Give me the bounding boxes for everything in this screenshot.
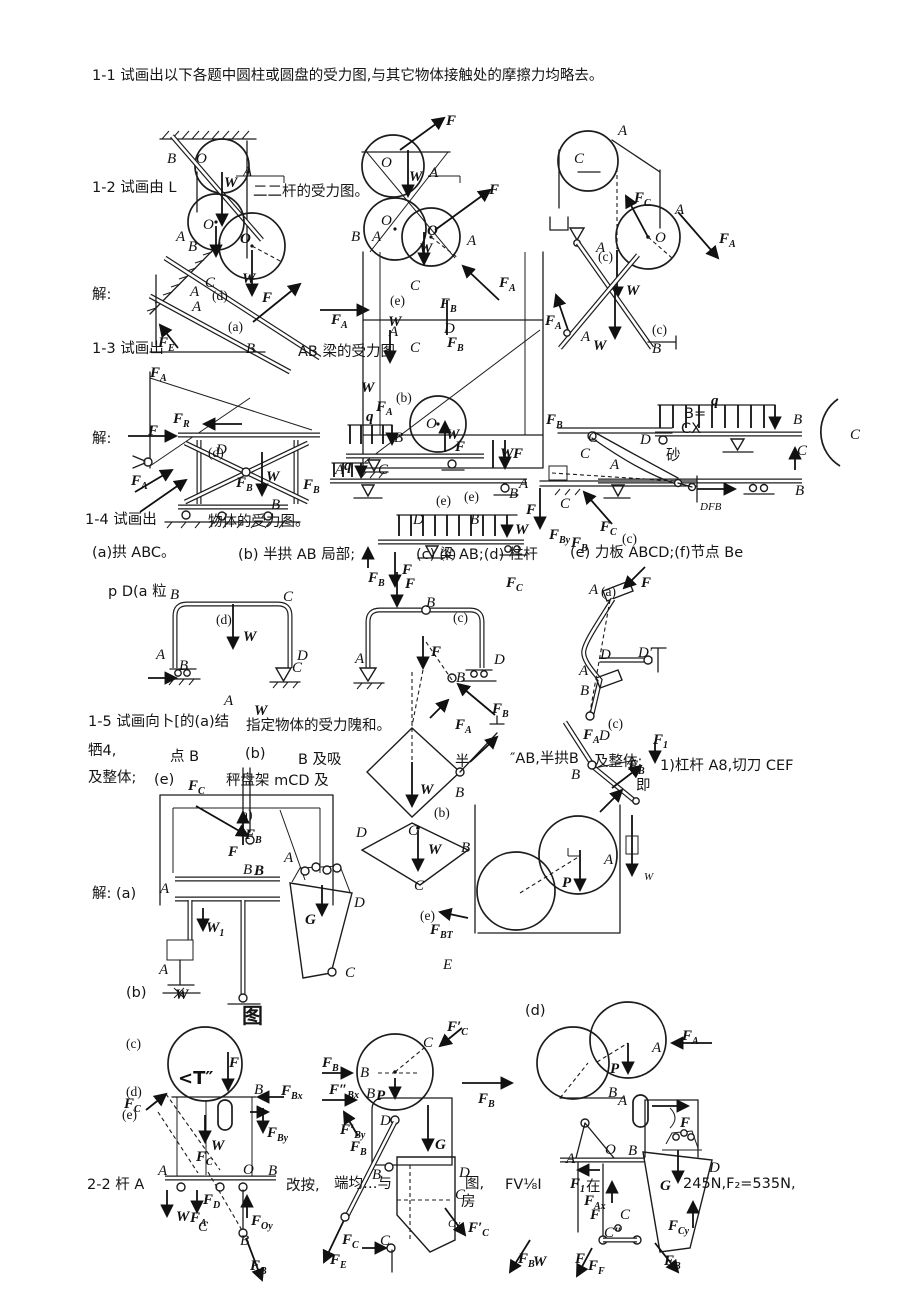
text-line: (d) — [525, 1003, 546, 1020]
diagram-label: W — [500, 447, 513, 462]
diagram-label: FC — [600, 520, 617, 535]
diagram-label: Cy — [448, 1219, 460, 1230]
diagram-label: FA — [455, 718, 472, 733]
diagram-label: F′C — [447, 1020, 468, 1035]
diagram-label: D — [356, 826, 367, 841]
diagram-label: B — [167, 152, 176, 167]
diagram-label: W — [176, 1210, 189, 1225]
diagram-label: (c) — [598, 250, 613, 264]
diagram-label: A — [372, 230, 381, 245]
diagram-label: O — [426, 417, 437, 432]
diagram-label: FA — [376, 400, 393, 415]
diagram-label: (c) — [453, 611, 468, 625]
diagram-label: B — [268, 1164, 277, 1179]
diagram-label: A — [652, 1041, 661, 1056]
diagram-label: W1 — [206, 921, 224, 936]
diagram-label: A — [192, 300, 201, 315]
text-line: 解: (a) — [92, 886, 136, 903]
diagram-label: FC — [506, 576, 523, 591]
diagram-label: P — [610, 1062, 619, 1077]
diagram-label: B — [580, 684, 589, 699]
diagram-label: A — [389, 325, 398, 340]
diagram-label: q — [344, 459, 352, 474]
diagram-label: O — [605, 1143, 616, 1158]
diagram-label: FOy — [251, 1214, 273, 1229]
text-line: 物体的受力图。 — [208, 514, 310, 531]
diagram-label: W — [409, 170, 422, 185]
diagram-label: A — [355, 652, 364, 667]
diagram-label: (a) — [601, 585, 616, 599]
text-line: (b) — [245, 746, 266, 763]
diagram-label: B — [240, 1234, 249, 1249]
text-line: CX — [681, 421, 701, 438]
diagram-label: FB — [447, 336, 464, 351]
diagram-label: FA — [131, 474, 148, 489]
text-line: 1-2 试画由 L — [92, 180, 176, 197]
diagram-label: G — [435, 1138, 446, 1153]
text-line: (b) 半拱 AB 局部; — [238, 547, 355, 564]
diagram-label: FR — [173, 412, 190, 427]
diagram-label: W — [420, 783, 433, 798]
text-line: 解: — [92, 287, 111, 304]
diagram-label: B — [571, 768, 580, 783]
diagram-label: F — [455, 440, 465, 455]
diagram-label: D — [600, 648, 611, 663]
diagram-label: (c) — [126, 1037, 141, 1051]
diagram-label: F — [641, 576, 651, 591]
diagram-label: F1 — [570, 1177, 585, 1192]
text-line: 1-1 试画出以下各题中圆柱或圆盘的受力图,与其它物体接触处的摩擦力均略去。 — [92, 68, 603, 85]
diagram-label: C — [620, 1208, 630, 1223]
text-line: 二二杆的受力图。 — [253, 184, 369, 201]
diagram-label: C — [560, 497, 570, 512]
diagram-label: F — [513, 447, 523, 462]
diagram-label: C — [574, 152, 584, 167]
diagram-label: F′By — [340, 1123, 365, 1138]
text-line: 牺4, — [88, 743, 116, 760]
diagram-label: B — [509, 487, 518, 502]
diagram-label: A — [610, 458, 619, 473]
diagram-label: B — [455, 786, 464, 801]
diagram-label: A — [159, 963, 168, 978]
diagram-label: FA — [499, 276, 516, 291]
diagram-label: F — [229, 1056, 239, 1071]
diagram-label: O — [655, 231, 666, 246]
diagram-label: (d) — [208, 446, 224, 460]
diagram-label: W — [644, 872, 653, 883]
diagram-label: C — [283, 590, 293, 605]
diagram-label: (e) — [122, 1108, 137, 1122]
diagram-label: W — [254, 704, 267, 719]
document-page: 1-1 试画出以下各题中圆柱或圆盘的受力图,与其它物体接触处的摩擦力均略去。1-… — [0, 0, 920, 1301]
fig-platform-scale — [160, 768, 352, 1004]
diagram-label: (e) — [390, 294, 405, 308]
diagram-label: C — [292, 661, 302, 676]
diagram-label: A — [589, 583, 598, 598]
diagram-label: O — [381, 214, 392, 229]
diagram-label: A — [618, 1094, 627, 1109]
diagram-label: F — [526, 503, 536, 518]
diagram-label: (e) — [464, 490, 479, 504]
diagram-label: D — [640, 433, 651, 448]
diagram-label: O — [243, 1163, 254, 1178]
diagram-label: B — [426, 596, 435, 611]
diagram-label: FBT — [430, 923, 453, 938]
diagram-label: F — [489, 183, 499, 198]
diagram-label: FA — [150, 366, 167, 381]
diagram-label: C — [378, 463, 388, 478]
text-line: ″AB,半拱B — [510, 751, 579, 768]
diagram-label: W — [266, 470, 279, 485]
diagram-label: C — [410, 279, 420, 294]
diagram-label: W — [211, 1139, 224, 1154]
text-line: 端均…与 — [334, 1176, 392, 1193]
diagram-label: G — [660, 1179, 671, 1194]
diagram-label: F — [680, 1116, 690, 1131]
diagram-label: (c) — [652, 323, 667, 337]
diagram-label: C — [408, 824, 418, 839]
text-line: 半 — [455, 754, 470, 771]
diagram-label: F — [431, 645, 441, 660]
text-line: 1-5 试画向卜[的(a)结 — [88, 714, 229, 731]
diagram-label: A — [190, 285, 199, 300]
diagram-label: F — [590, 1208, 600, 1223]
diagram-label: B — [360, 1066, 369, 1081]
diagram-label: B — [628, 1144, 637, 1159]
diagram-label: A — [335, 463, 344, 478]
diagram-label: A — [158, 1164, 167, 1179]
text-line: 245N,F₂=535N, — [683, 1176, 796, 1193]
diagram-label: B — [179, 659, 188, 674]
diagram-label: <T″ — [178, 1070, 213, 1088]
diagram-label: A — [243, 165, 252, 180]
text-line: (e) — [154, 772, 174, 789]
diagram-label: q — [366, 410, 374, 425]
diagram-label: W — [419, 242, 432, 257]
diagram-label: D — [459, 1166, 470, 1181]
fig-cylinders-container — [475, 805, 638, 933]
diagram-label: W — [175, 988, 188, 1003]
diagram-label: F″Bx — [329, 1083, 359, 1098]
diagram-label: F — [262, 291, 272, 306]
diagram-label: W — [593, 339, 606, 354]
diagram-label: (c) — [608, 717, 623, 731]
diagram-label: W — [428, 843, 441, 858]
diagram-label: FA — [331, 313, 348, 328]
text-line: p D(a 粒 — [108, 584, 167, 601]
diagram-label: O — [196, 152, 207, 167]
diagram-label: FB — [478, 1092, 495, 1107]
diagram-label: B — [243, 863, 252, 878]
text-line: (a)拱 ABC。 — [92, 545, 176, 562]
diagram-label: (a) — [228, 320, 243, 334]
diagram-label: FF — [588, 1259, 605, 1274]
diagram-label: W — [515, 523, 528, 538]
diagram-label: A — [604, 853, 613, 868]
diagram-label: F1 — [653, 733, 668, 748]
diagram-label: B — [254, 864, 264, 879]
diagram-label: FCy — [668, 1219, 689, 1234]
diagram-label: FA — [682, 1029, 699, 1044]
diagram-label: C — [850, 428, 860, 443]
diagram-label: F — [575, 1252, 585, 1267]
diagram-label: C — [588, 431, 598, 446]
diagram-label: (e) — [420, 909, 435, 923]
diagram-label: O — [381, 156, 392, 171]
diagram-label: D — [413, 513, 424, 528]
diagram-label: P — [562, 876, 571, 891]
diagram-label: B — [394, 431, 403, 446]
diagram-label: FBx — [281, 1084, 303, 1099]
text-line: 秤盘架 mCD 及 — [226, 773, 329, 790]
diagram-label: B — [254, 1083, 263, 1098]
diagram-label: B — [366, 1087, 375, 1102]
diagram-label: B — [271, 498, 280, 513]
fig-bottom-right-assembly — [462, 1002, 712, 1276]
text-line: FV⅛I — [505, 1177, 542, 1194]
diagram-label: F — [405, 577, 415, 592]
diagram-label: F′C — [468, 1221, 489, 1236]
diagram-label: FE — [158, 336, 175, 351]
diagram-label: W — [242, 272, 255, 287]
text-line: 2-2 杆 A — [87, 1177, 144, 1194]
diagram-label: A — [176, 230, 185, 245]
text-line: AB 梁的受力图 — [298, 344, 395, 361]
diagram-label: B — [470, 513, 479, 528]
text-line: 点 B — [170, 749, 199, 766]
diagram-label: q — [711, 394, 719, 409]
text-line: 解: — [92, 431, 111, 448]
diagram-label: C″ — [604, 1226, 620, 1241]
diagram-label: C — [423, 1036, 433, 1051]
diagram-label: E — [443, 958, 452, 973]
diagram-label: B — [608, 1086, 617, 1101]
text-line: 1-3 试画出 — [92, 341, 164, 358]
diagram-label: (e) — [436, 494, 451, 508]
diagram-label: FC — [342, 1233, 359, 1248]
diagram-label: FC — [634, 191, 651, 206]
diagram-label: D — [354, 896, 365, 911]
diagram-label: FA — [583, 728, 600, 743]
diagram-label: (d) — [216, 613, 232, 627]
diagram-label: B — [456, 671, 465, 686]
diagram-label: G — [305, 913, 316, 928]
diagram-label: B — [652, 342, 661, 357]
diagram-label: W — [533, 1255, 546, 1270]
diagram-label: C — [580, 447, 590, 462]
diagram-label: A — [467, 234, 476, 249]
diagram-label: A — [618, 124, 627, 139]
text-line: (c) 梁 AB;(d) 柱杆 — [416, 547, 538, 564]
diagram-label: FC — [188, 779, 205, 794]
fig-portal-frames — [148, 572, 496, 726]
diagram-label: DFB — [700, 502, 721, 513]
diagram-label: FB — [492, 702, 509, 717]
diagram-label: F — [446, 114, 456, 129]
diagram-label: C — [455, 1188, 465, 1203]
text-line: 1)杠杆 A8,切刀 CEF — [660, 758, 793, 775]
diagram-label: A — [519, 477, 528, 492]
diagram-label: FB — [245, 828, 262, 843]
diagram-label: FE — [330, 1253, 347, 1268]
diagram-label: A — [160, 882, 169, 897]
diagram-label: B — [246, 342, 255, 357]
diagram-label: FB — [571, 536, 588, 551]
diagram-label: A — [566, 1152, 575, 1167]
diagram-label: A — [224, 694, 233, 709]
text-line: 即 — [636, 778, 651, 795]
diagram-label: A — [579, 664, 588, 679]
diagram-label: A — [156, 648, 165, 663]
text-line: 1-4 试画出 — [85, 512, 157, 529]
diagram-label: C — [345, 966, 355, 981]
diagram-label: C — [380, 1234, 390, 1249]
text-line: B 及吸 — [298, 752, 342, 769]
diagram-label: A — [675, 203, 684, 218]
diagram-label: C — [797, 444, 807, 459]
diagram-label: FB — [250, 1259, 267, 1274]
diagram-label: B — [170, 588, 179, 603]
diagram-label: a) — [242, 808, 253, 822]
diagram-label: W — [626, 284, 639, 299]
diagram-label: B — [793, 413, 802, 428]
diagram-label: FB — [303, 478, 320, 493]
diagram-label: FD — [203, 1193, 220, 1208]
diagram-label: D — [494, 653, 505, 668]
diagram-label: (c) — [622, 532, 637, 546]
text-line: 改按, — [286, 1178, 320, 1195]
diagram-label: B — [795, 484, 804, 499]
diagram-label: D — [709, 1161, 720, 1176]
diagram-label: D' — [638, 646, 652, 661]
diagram-label: FA — [545, 314, 562, 329]
diagram-label: O — [203, 218, 214, 233]
diagram-label: W — [361, 381, 374, 396]
diagram-label: FB — [236, 476, 253, 491]
diagram-label: D — [599, 729, 610, 744]
diagram-label: C — [410, 341, 420, 356]
diagram-label: FB — [440, 297, 457, 312]
diagram-label: FB — [322, 1056, 339, 1071]
diagram-label: FBy — [267, 1126, 288, 1141]
diagram-label: (b) — [396, 391, 412, 405]
diagram-label: FB — [368, 571, 385, 586]
diagram-label: O — [240, 232, 251, 247]
diagram-label: C — [414, 879, 424, 894]
diagram-label: FA — [719, 232, 736, 247]
diagram-label: D — [380, 1114, 391, 1129]
diagram-label: B — [351, 230, 360, 245]
diagram-label: FB — [664, 1254, 681, 1269]
text-line: (b) — [126, 985, 147, 1002]
text-line: 图 — [242, 1004, 263, 1028]
diagram-label: B — [461, 841, 470, 856]
diagram-label: P — [376, 1089, 385, 1104]
text-line: 砂 — [666, 448, 681, 465]
diagram-label: (b) — [434, 806, 450, 820]
diagram-label: A — [284, 851, 293, 866]
diagram-label: A — [429, 166, 438, 181]
text-line: 指定物体的受力隗和。 — [246, 718, 391, 735]
diagram-label: A — [581, 330, 590, 345]
text-line: (e) 力板 ABCD;(f)节点 Be — [570, 545, 743, 562]
diagram-label: (d) — [212, 289, 228, 303]
diagram-label: C — [198, 1220, 208, 1235]
diagram-label: F — [228, 845, 238, 860]
diagram-label: (b) — [440, 547, 456, 561]
diagram-label: FB — [546, 413, 563, 428]
diagram-label: B — [372, 1168, 381, 1183]
text-line: 及整体; — [88, 770, 136, 787]
diagram-label: FB — [628, 759, 645, 774]
diagram-label: O — [427, 224, 438, 239]
diagram-label: F — [148, 424, 158, 439]
diagram-label: FB — [350, 1140, 367, 1155]
diagram-label: W — [243, 630, 256, 645]
fig-cylinder-incline — [147, 131, 368, 372]
diagram-label: B — [188, 240, 197, 255]
diagram-label: FBy — [549, 528, 570, 543]
diagram-label: W — [224, 176, 237, 191]
